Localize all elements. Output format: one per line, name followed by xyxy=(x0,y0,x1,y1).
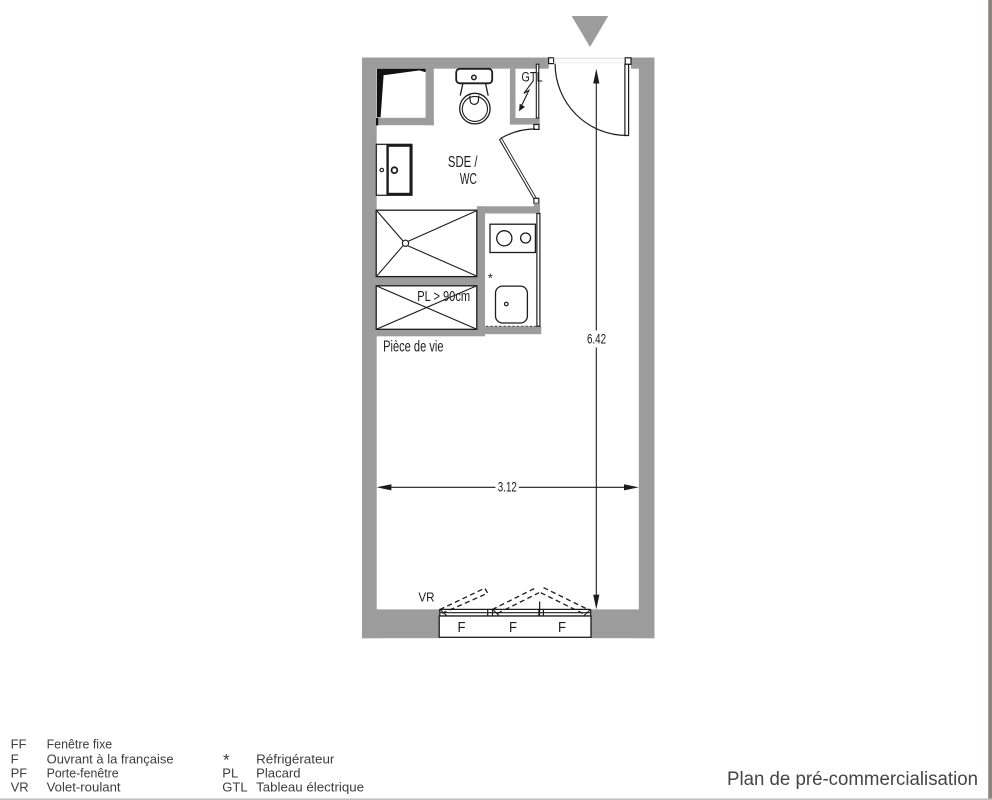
svg-text:F: F xyxy=(509,620,517,636)
svg-text:Fenêtre fixe: Fenêtre fixe xyxy=(47,737,113,752)
svg-text:PF: PF xyxy=(11,766,28,781)
svg-text:Réfrigérateur: Réfrigérateur xyxy=(256,752,335,767)
svg-text:Porte-fenêtre: Porte-fenêtre xyxy=(47,766,119,781)
svg-text:Ouvrant à la française: Ouvrant à la française xyxy=(47,752,174,767)
svg-text:3.12: 3.12 xyxy=(498,479,517,495)
svg-text:Volet-roulant: Volet-roulant xyxy=(47,780,121,795)
svg-text:Tableau électrique: Tableau électrique xyxy=(256,780,364,795)
svg-text:6.42: 6.42 xyxy=(587,331,606,347)
svg-text:F: F xyxy=(458,620,466,636)
svg-text:F: F xyxy=(11,752,19,767)
svg-text:Plan de pré-commercialisation: Plan de pré-commercialisation xyxy=(727,769,978,790)
svg-text:PL: PL xyxy=(222,766,238,781)
svg-text:F: F xyxy=(558,620,566,636)
svg-text:Pièce de vie: Pièce de vie xyxy=(383,339,443,356)
svg-text:SDE /: SDE / xyxy=(448,154,478,171)
svg-text:GTL: GTL xyxy=(222,780,247,795)
svg-text:PL > 90cm: PL > 90cm xyxy=(417,288,470,305)
svg-text:FF: FF xyxy=(11,737,27,752)
svg-text:*: * xyxy=(488,271,493,286)
svg-text:VR: VR xyxy=(11,780,29,795)
svg-text:Placard: Placard xyxy=(256,766,301,781)
svg-text:VR: VR xyxy=(418,590,434,604)
svg-text:WC: WC xyxy=(460,171,477,188)
